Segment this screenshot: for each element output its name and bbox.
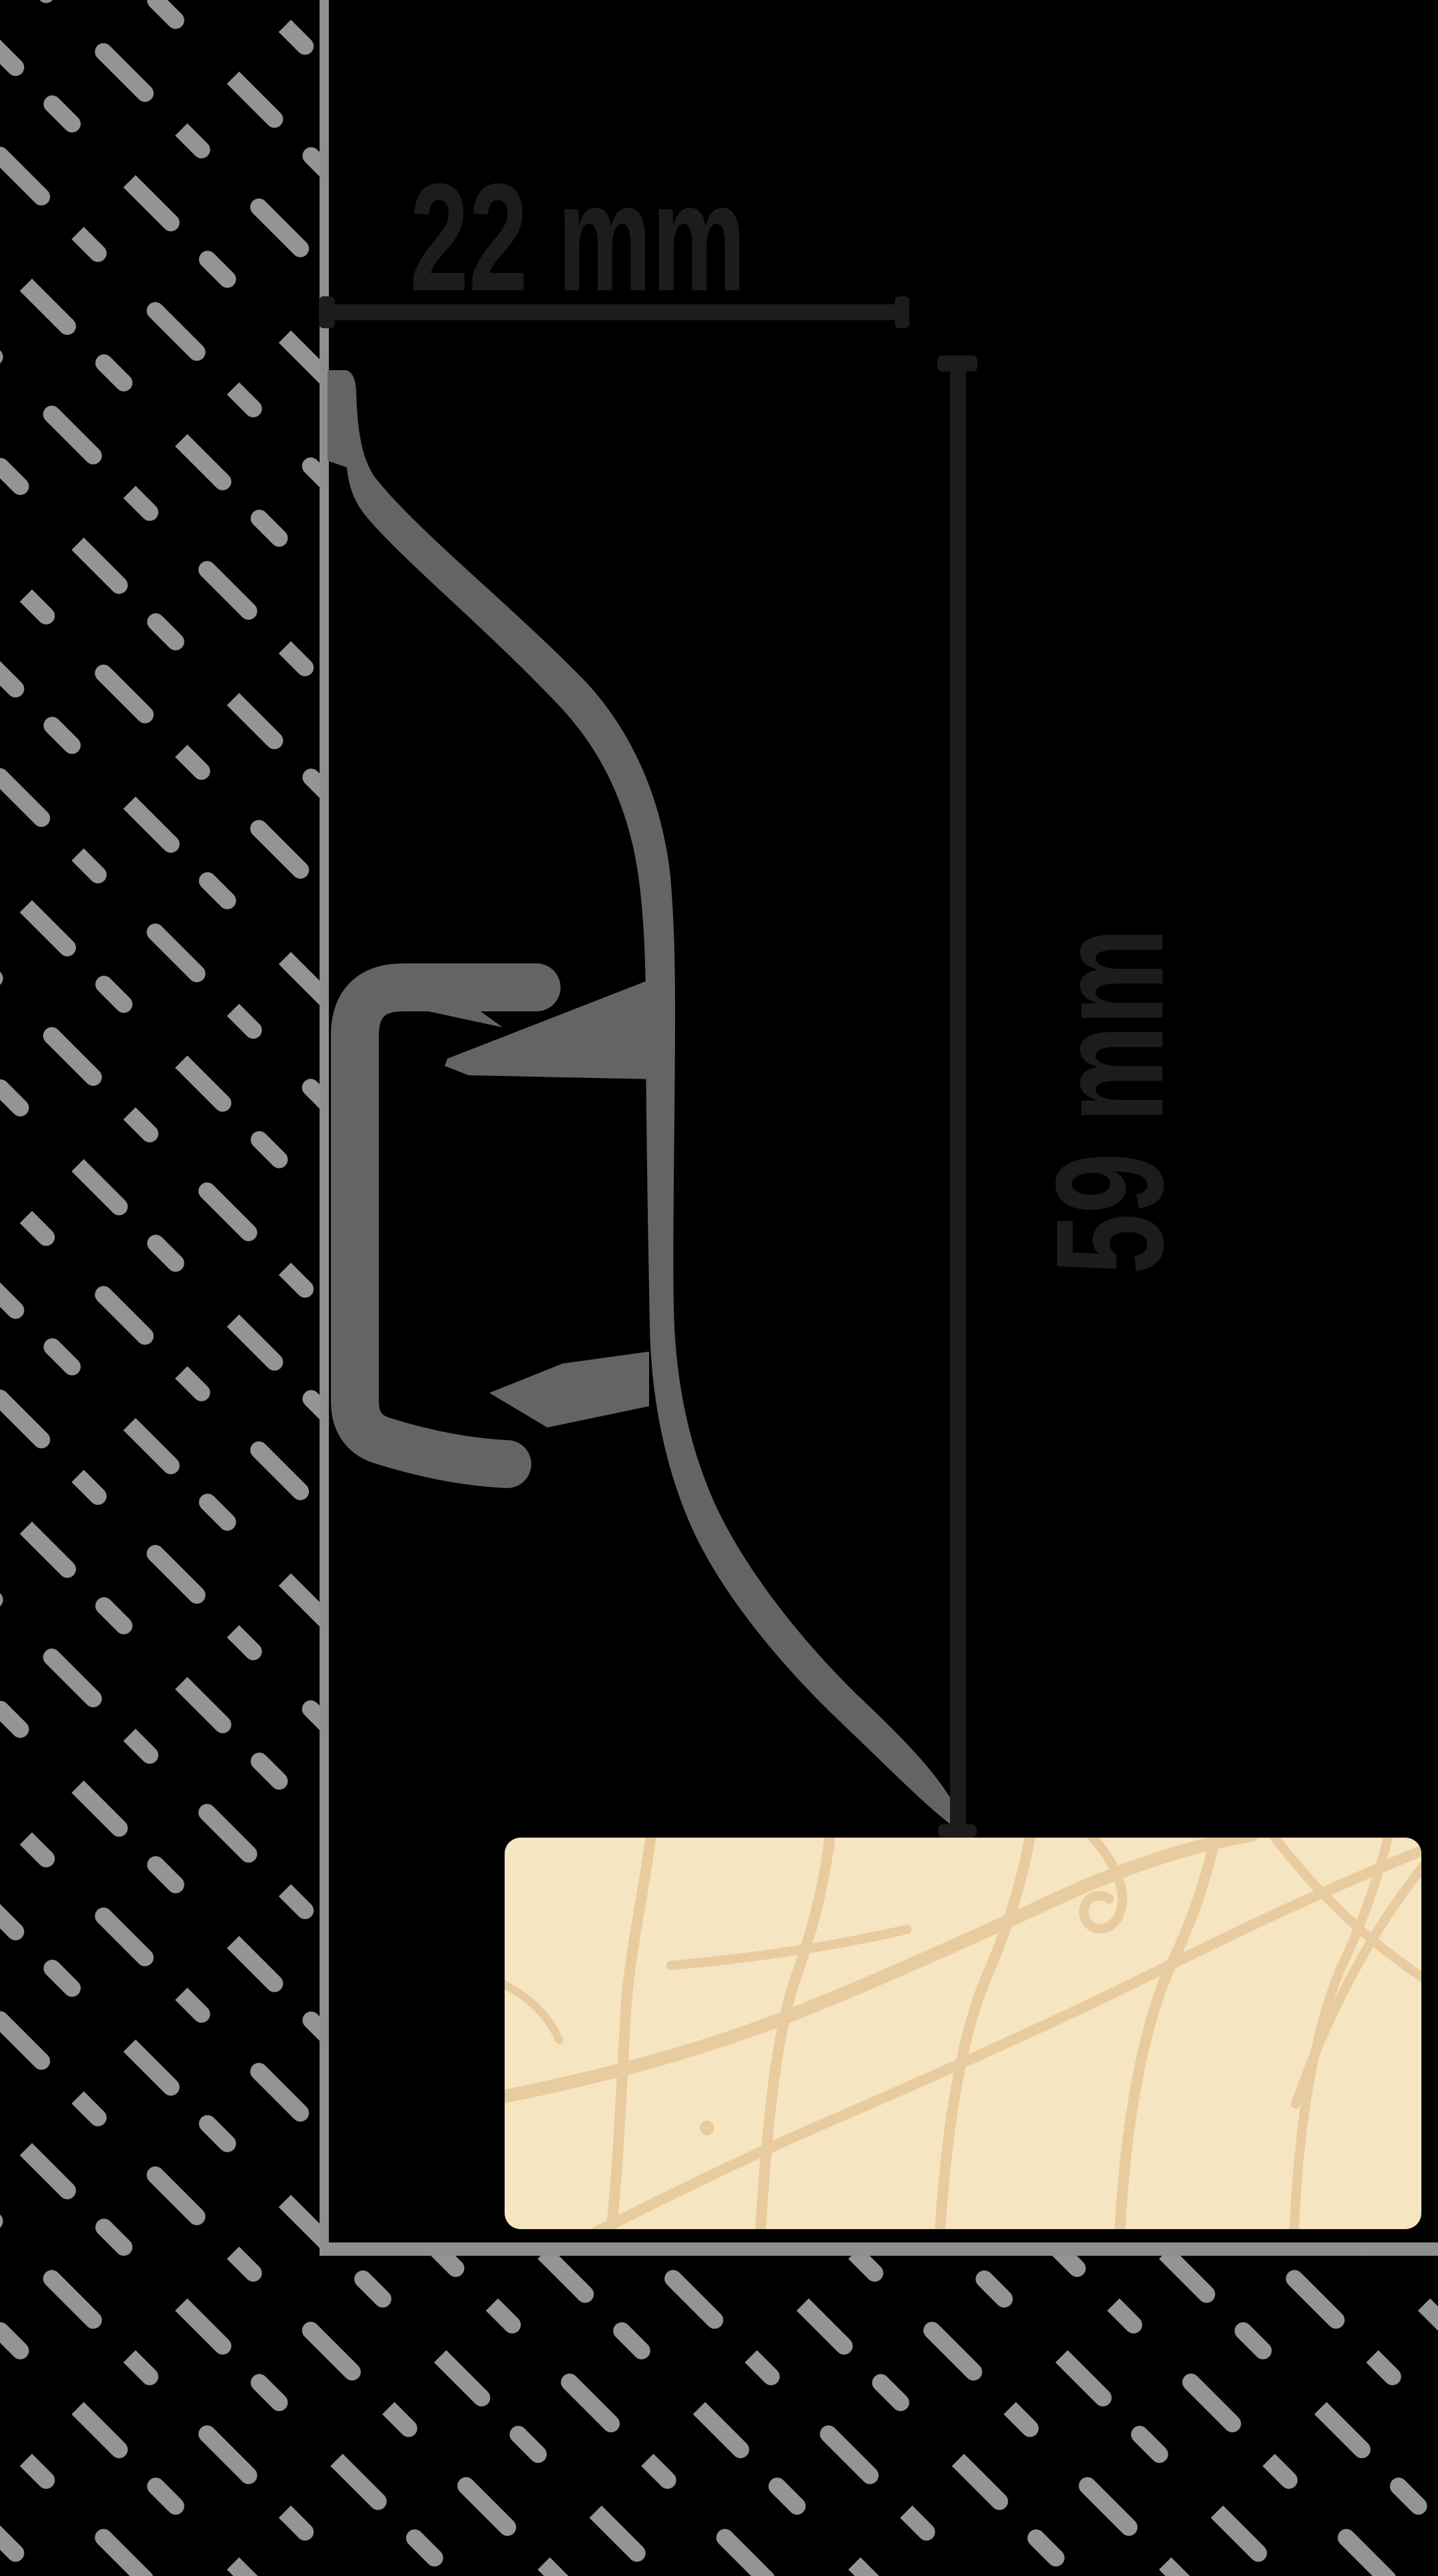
skirting-profile-diagram: 22 mm 59 mm [0,0,1438,2576]
diagram-canvas: 22 mm 59 mm [0,0,1438,2576]
floor-grain-knot [700,2121,714,2135]
width-dimension-label: 22 mm [410,152,746,323]
height-dimension-tick-top [937,356,977,372]
wall-surface-line [320,0,329,2256]
height-dimension-tick-bottom [938,1824,977,1838]
width-dimension-tick-right [895,296,909,328]
height-dimension-line [950,365,966,1834]
floor-board [501,1835,1425,2232]
height-dimension-label: 59 mm [1024,928,1195,1274]
floor-surface-line [320,2242,1438,2256]
width-dimension-tick-left [319,296,335,328]
